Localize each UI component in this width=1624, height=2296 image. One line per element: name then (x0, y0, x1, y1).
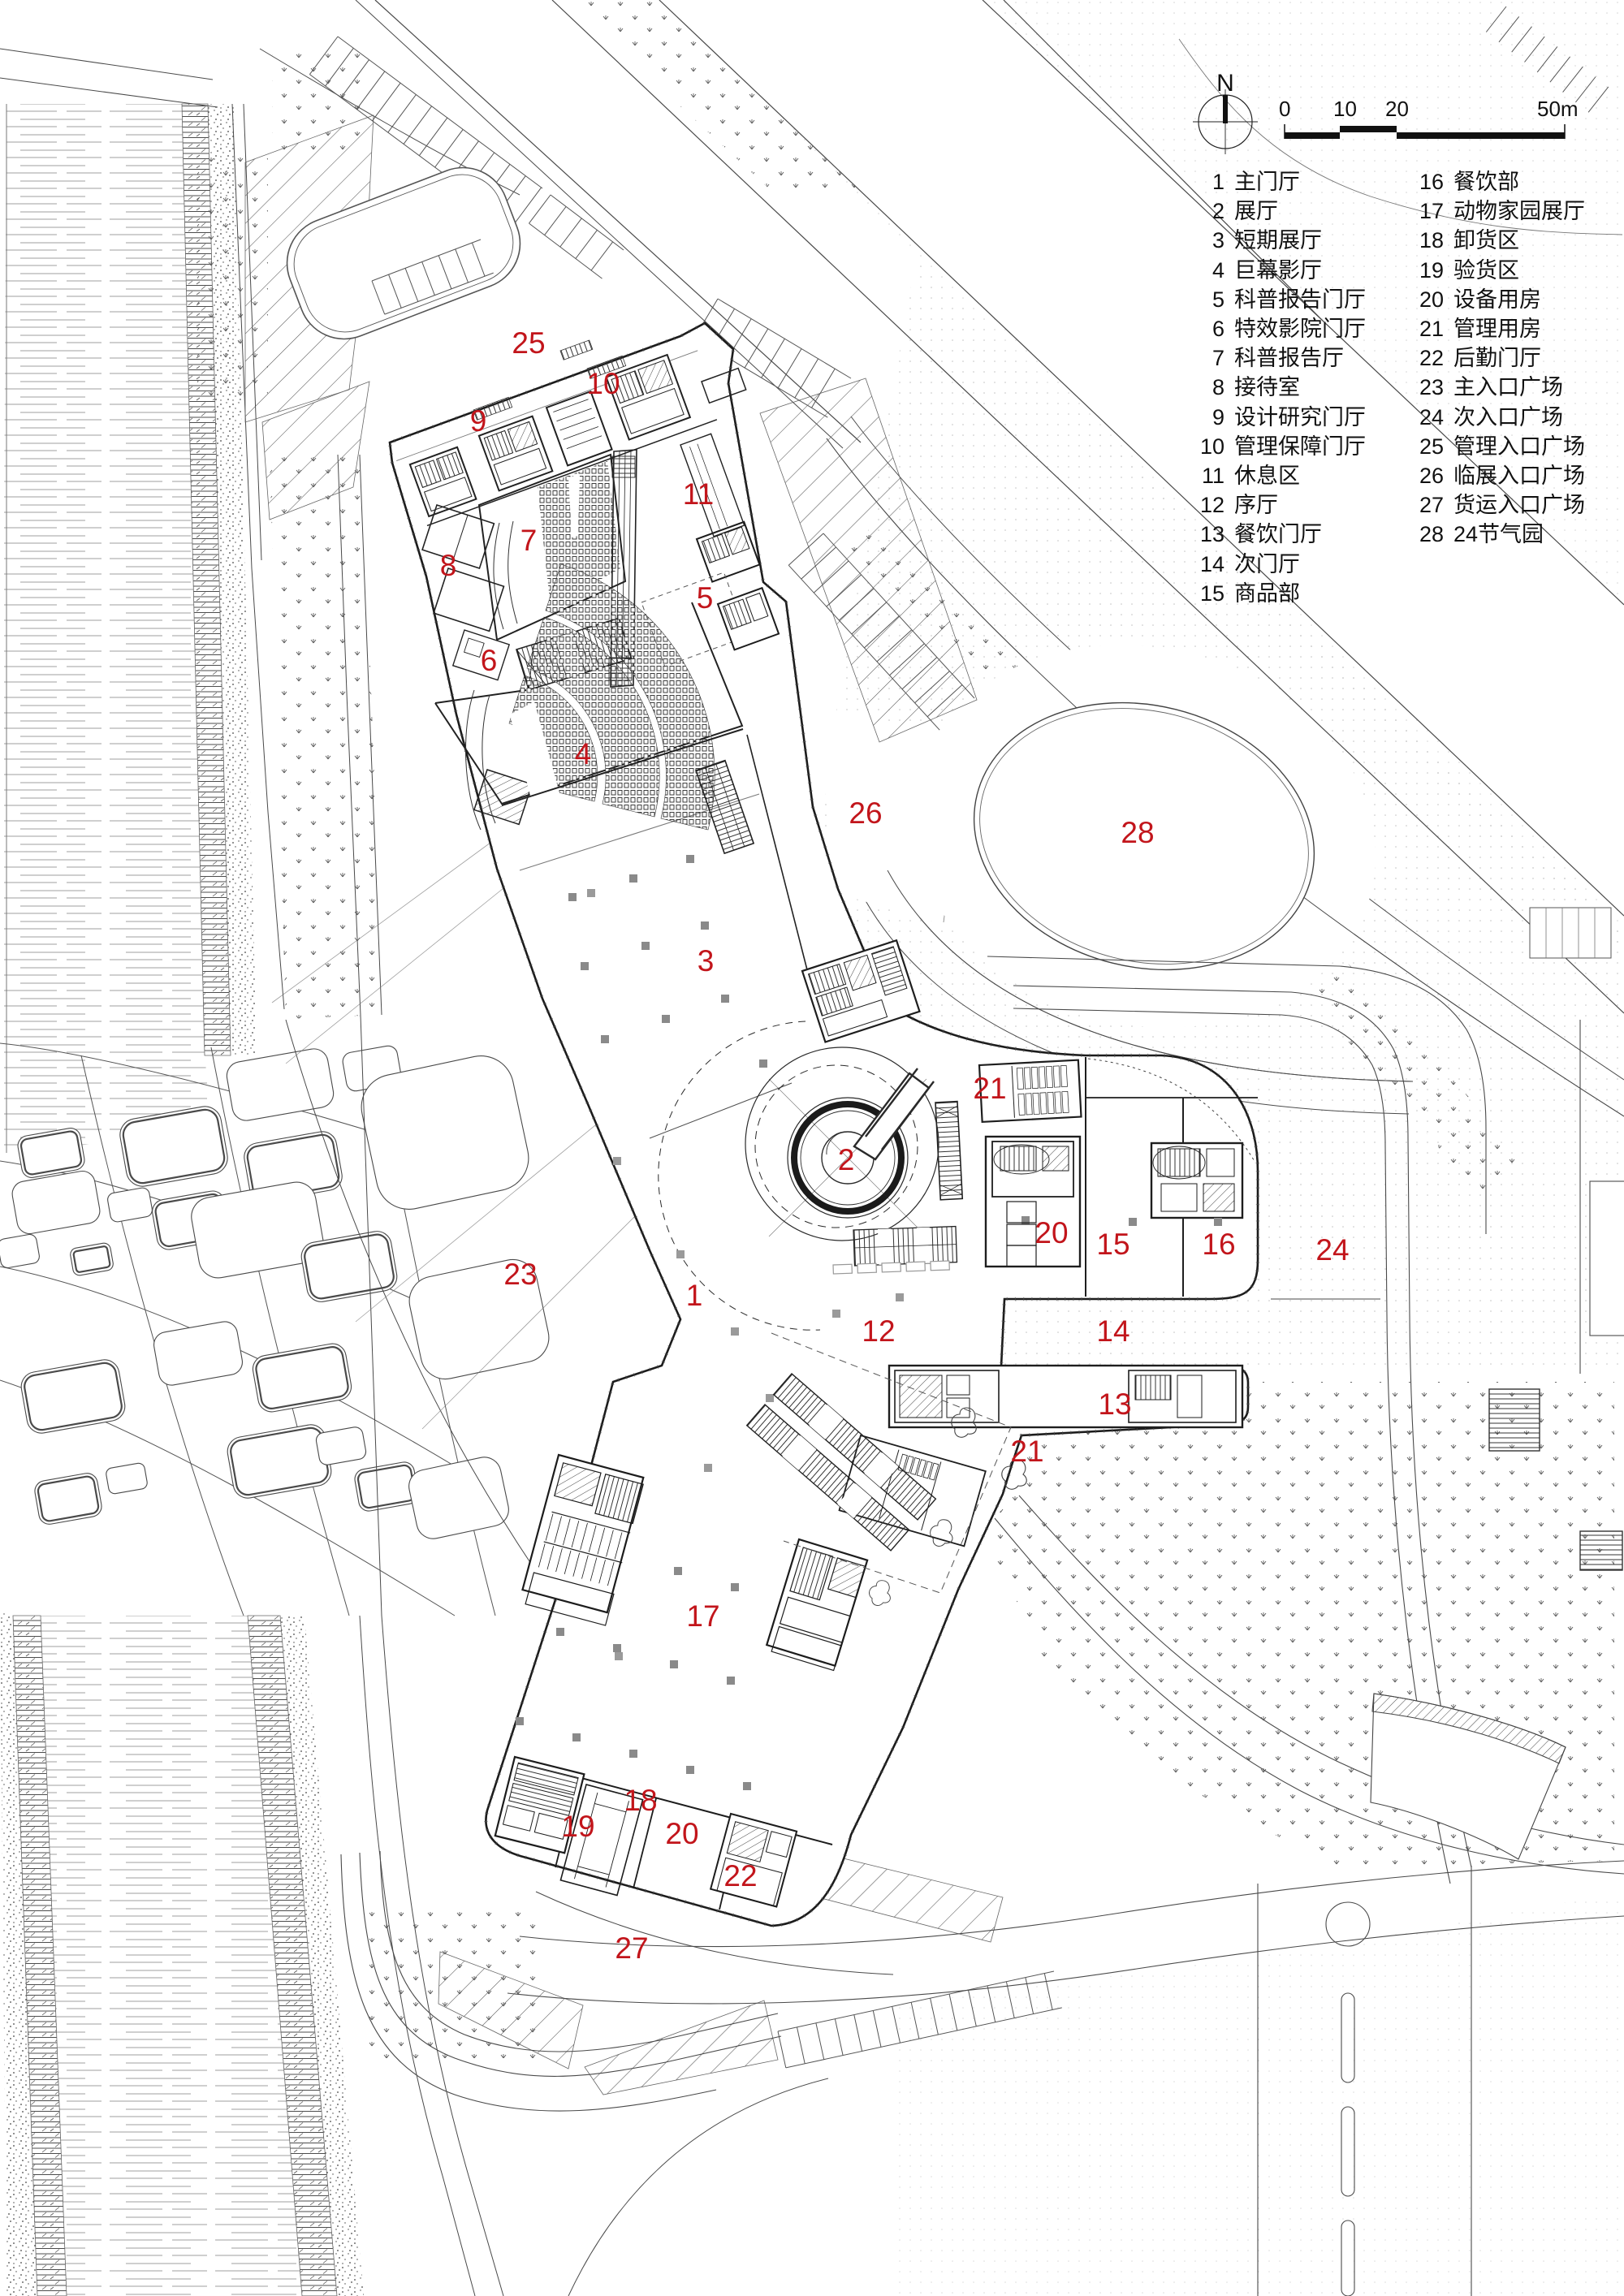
svg-text:28: 28 (1419, 522, 1444, 546)
svg-text:5: 5 (697, 581, 714, 615)
svg-text:26: 26 (849, 796, 882, 830)
svg-text:15: 15 (1200, 581, 1224, 606)
svg-text:4: 4 (575, 737, 592, 770)
svg-text:14: 14 (1096, 1314, 1129, 1348)
svg-text:23: 23 (503, 1258, 537, 1291)
svg-text:7: 7 (520, 524, 538, 557)
svg-text:临展入口广场: 临展入口广场 (1453, 464, 1585, 488)
svg-text:主门厅: 主门厅 (1234, 170, 1300, 194)
svg-text:科普报告门厅: 科普报告门厅 (1234, 287, 1366, 312)
svg-text:6: 6 (481, 644, 498, 677)
svg-text:货运入口广场: 货运入口广场 (1453, 493, 1585, 517)
svg-text:22: 22 (1419, 346, 1444, 370)
svg-text:设备用房: 设备用房 (1453, 287, 1541, 312)
svg-text:21: 21 (973, 1072, 1006, 1105)
svg-text:25: 25 (1419, 434, 1444, 459)
svg-text:1: 1 (686, 1279, 703, 1312)
svg-text:24节气园: 24节气园 (1453, 522, 1544, 546)
svg-text:巨幕影厅: 巨幕影厅 (1234, 258, 1322, 283)
svg-text:管理入口广场: 管理入口广场 (1453, 434, 1585, 459)
svg-text:27: 27 (615, 1931, 648, 1965)
svg-text:11: 11 (683, 477, 714, 511)
svg-text:18: 18 (624, 1784, 657, 1817)
svg-text:2: 2 (1212, 199, 1224, 223)
svg-text:20: 20 (1419, 287, 1444, 312)
svg-text:接待室: 接待室 (1234, 375, 1300, 399)
svg-text:17: 17 (686, 1599, 719, 1633)
svg-text:20: 20 (1034, 1216, 1068, 1249)
svg-text:24: 24 (1315, 1233, 1349, 1267)
svg-text:27: 27 (1419, 493, 1444, 517)
svg-text:17: 17 (1419, 199, 1444, 223)
svg-text:12: 12 (1200, 493, 1224, 517)
svg-text:28: 28 (1121, 816, 1154, 849)
svg-text:餐饮门厅: 餐饮门厅 (1234, 522, 1322, 546)
svg-text:设计研究门厅: 设计研究门厅 (1234, 405, 1366, 429)
svg-text:7: 7 (1212, 346, 1224, 370)
svg-text:13: 13 (1200, 522, 1224, 546)
svg-text:19: 19 (1419, 258, 1444, 283)
svg-text:18: 18 (1419, 228, 1444, 252)
svg-text:科普报告厅: 科普报告厅 (1234, 346, 1344, 370)
svg-text:20: 20 (1385, 97, 1409, 121)
svg-text:50m: 50m (1537, 97, 1579, 121)
svg-text:特效影院门厅: 特效影院门厅 (1234, 317, 1366, 341)
svg-text:验货区: 验货区 (1453, 258, 1519, 283)
svg-text:11: 11 (1202, 464, 1224, 488)
svg-text:商品部: 商品部 (1234, 581, 1300, 606)
svg-text:24: 24 (1419, 405, 1444, 429)
svg-text:次门厅: 次门厅 (1234, 552, 1300, 576)
svg-text:9: 9 (470, 404, 487, 438)
svg-text:8: 8 (1212, 375, 1224, 399)
svg-text:管理保障门厅: 管理保障门厅 (1234, 434, 1366, 459)
svg-text:10: 10 (1200, 434, 1224, 459)
svg-text:5: 5 (1212, 287, 1224, 312)
svg-text:主入口广场: 主入口广场 (1453, 375, 1563, 399)
svg-text:15: 15 (1096, 1228, 1129, 1261)
svg-text:13: 13 (1098, 1388, 1131, 1421)
svg-text:4: 4 (1212, 258, 1224, 283)
svg-text:2: 2 (838, 1143, 855, 1176)
svg-text:12: 12 (862, 1314, 895, 1348)
svg-text:管理用房: 管理用房 (1453, 317, 1541, 341)
svg-text:26: 26 (1419, 464, 1444, 488)
svg-text:3: 3 (698, 944, 715, 978)
svg-text:6: 6 (1212, 317, 1224, 341)
svg-text:3: 3 (1212, 228, 1224, 252)
svg-text:10: 10 (586, 367, 620, 400)
svg-text:21: 21 (1010, 1435, 1043, 1468)
svg-text:23: 23 (1419, 375, 1444, 399)
svg-text:休息区: 休息区 (1234, 464, 1300, 488)
svg-text:后勤门厅: 后勤门厅 (1453, 346, 1541, 370)
svg-text:19: 19 (561, 1810, 594, 1843)
svg-text:21: 21 (1419, 317, 1444, 341)
svg-text:16: 16 (1419, 170, 1444, 194)
svg-text:展厅: 展厅 (1234, 199, 1278, 223)
svg-text:14: 14 (1200, 552, 1224, 576)
svg-text:短期展厅: 短期展厅 (1234, 228, 1322, 252)
svg-text:9: 9 (1212, 405, 1224, 429)
svg-text:序厅: 序厅 (1234, 493, 1278, 517)
svg-text:8: 8 (440, 549, 457, 582)
svg-text:餐饮部: 餐饮部 (1453, 170, 1519, 194)
svg-text:N: N (1216, 70, 1234, 97)
svg-text:20: 20 (665, 1817, 698, 1850)
svg-text:10: 10 (1333, 97, 1357, 121)
svg-text:25: 25 (512, 326, 545, 360)
svg-text:16: 16 (1202, 1228, 1235, 1261)
svg-text:1: 1 (1212, 170, 1224, 194)
svg-text:22: 22 (723, 1859, 757, 1892)
svg-text:动物家园展厅: 动物家园展厅 (1453, 199, 1585, 223)
svg-text:卸货区: 卸货区 (1453, 228, 1519, 252)
svg-text:次入口广场: 次入口广场 (1453, 405, 1563, 429)
svg-text:0: 0 (1279, 97, 1290, 121)
